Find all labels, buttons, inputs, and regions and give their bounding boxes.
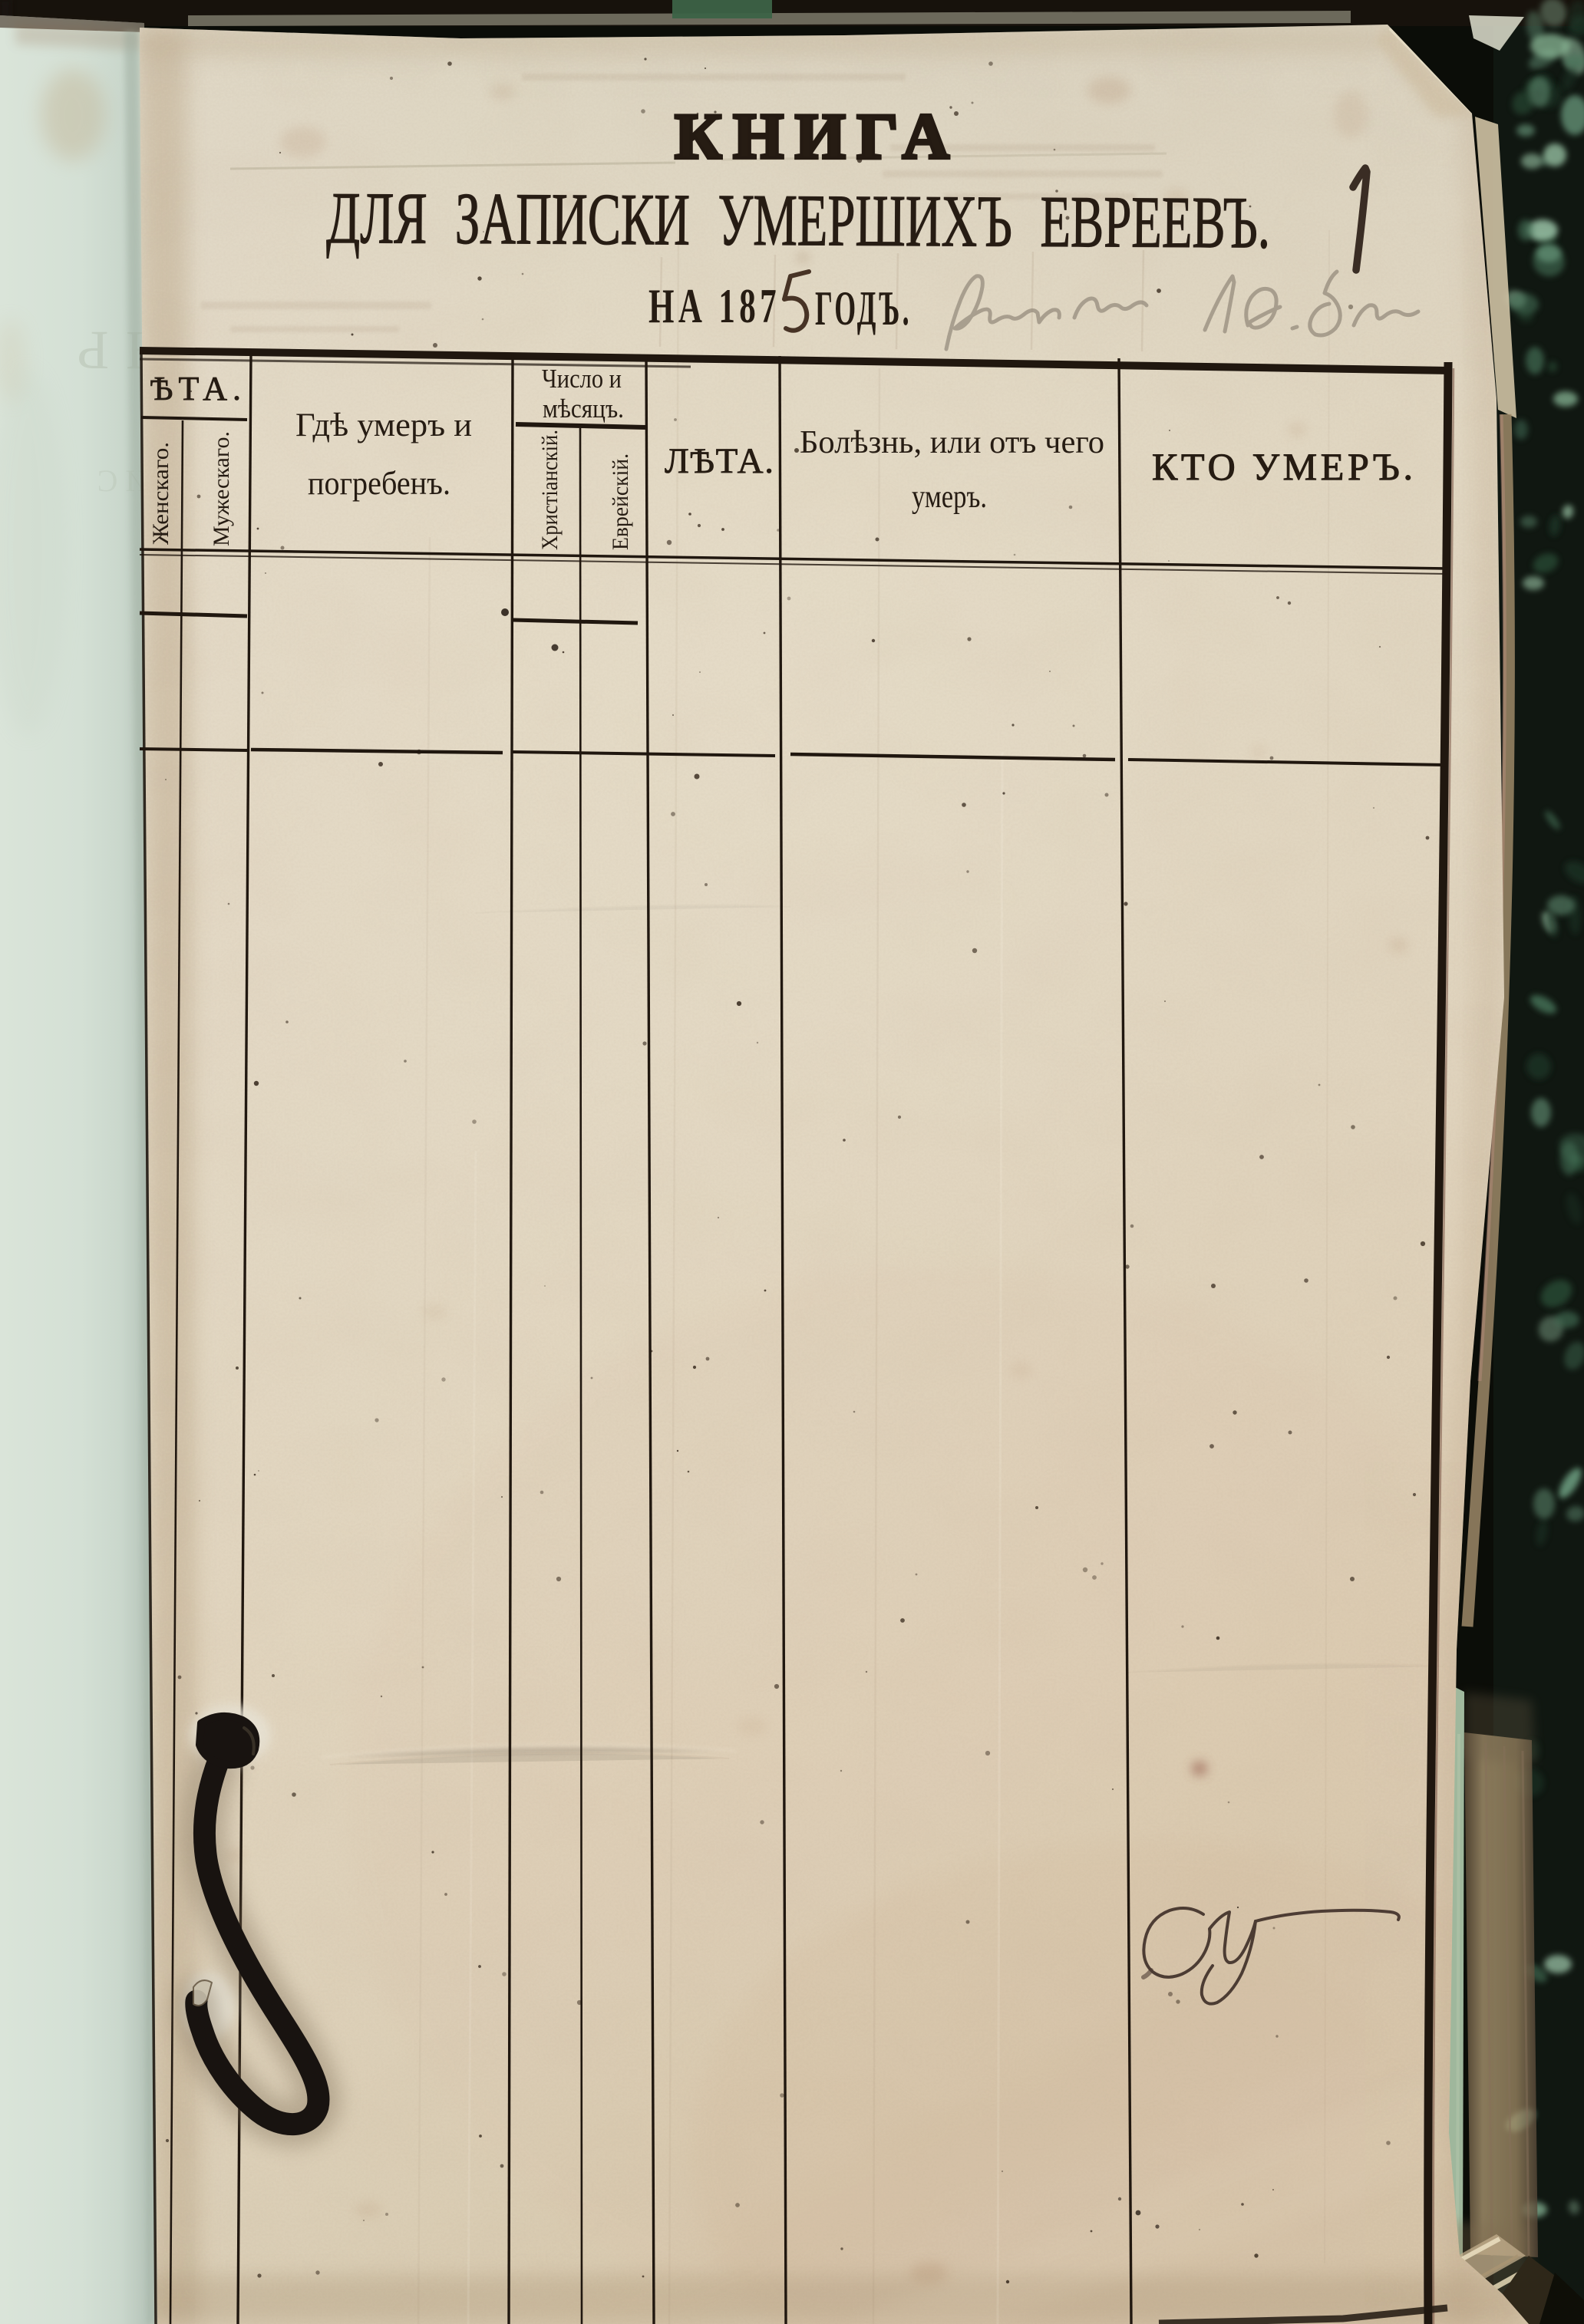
svg-text:ѢТА.: ѢТА.	[150, 370, 252, 407]
svg-text:Гдѣ умеръ и: Гдѣ умеръ и	[295, 407, 472, 443]
svg-text:Число и: Число и	[542, 364, 622, 394]
svg-text:ЛѢТА.: ЛѢТА.	[665, 441, 778, 481]
svg-text:Еврейскій.: Еврейскій.	[608, 453, 633, 550]
svg-text:погребенъ.: погребенъ.	[308, 466, 450, 502]
svg-text:НА 187: НА 187	[648, 279, 780, 333]
svg-text:Женскаго.: Женскаго.	[148, 442, 173, 545]
svg-text:КНИГА: КНИГА	[675, 101, 949, 173]
svg-text:ГОДЪ.: ГОДЪ.	[815, 281, 912, 335]
svg-text:Мужескаго.: Мужескаго.	[209, 431, 234, 546]
svg-text:ДЛЯ ЗАПИСКИ УМЕРШИХЪ ЕВРЕЕВЪ.: ДЛЯ ЗАПИСКИ УМЕРШИХЪ ЕВРЕЕВЪ.	[326, 176, 1271, 263]
svg-text:мѣсяцъ.: мѣсяцъ.	[543, 394, 624, 424]
svg-text:Болѣзнь, или отъ чего: Болѣзнь, или отъ чего	[800, 425, 1104, 460]
svg-text:умеръ.: умеръ.	[912, 480, 987, 515]
svg-text:КТО УМЕРЪ.: КТО УМЕРЪ.	[1152, 445, 1419, 488]
svg-text:Христіанскій.: Христіанскій.	[537, 430, 563, 550]
